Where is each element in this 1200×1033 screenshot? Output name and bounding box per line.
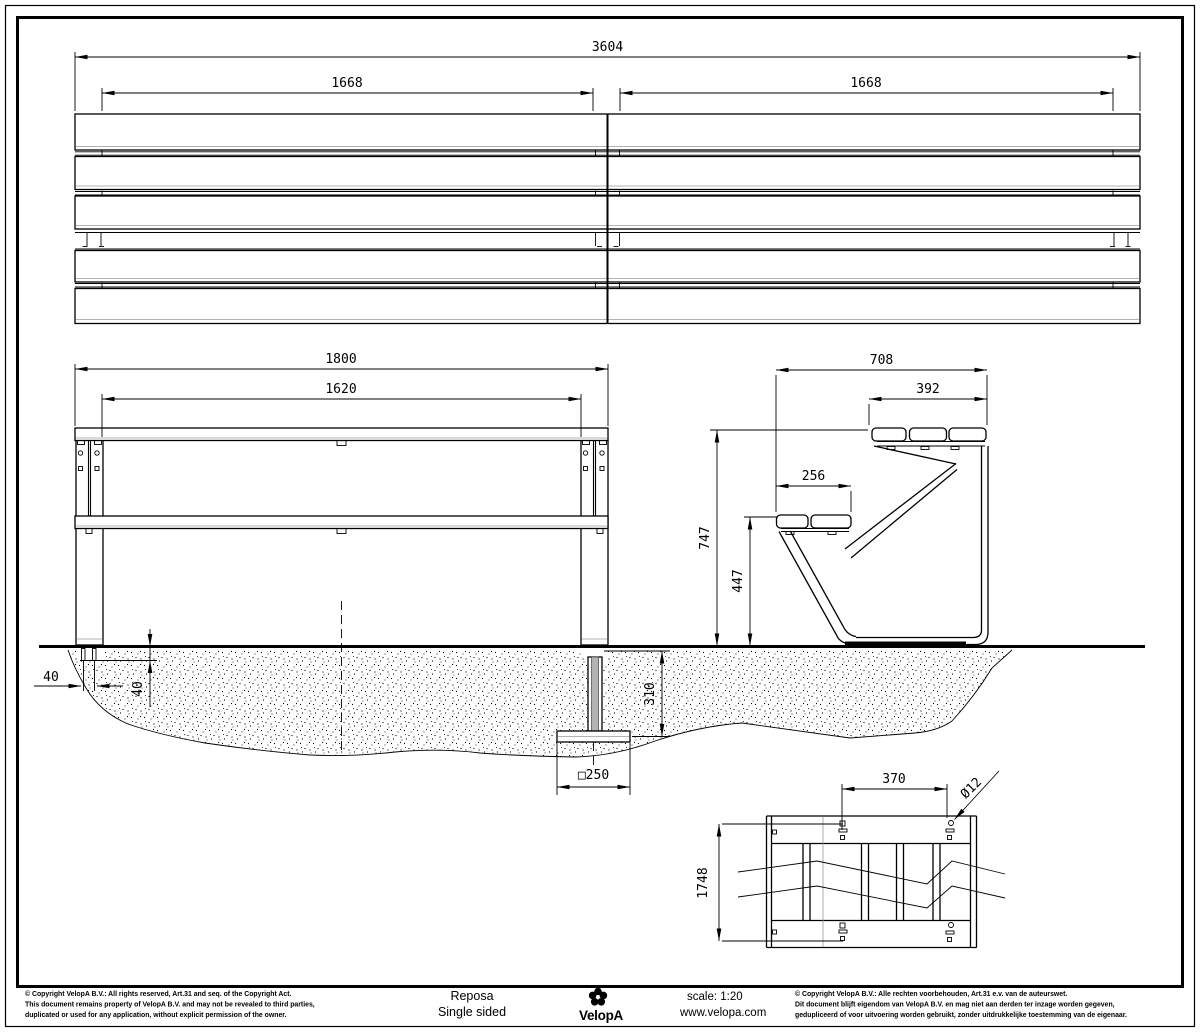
dim-label-1668-right: 1668 bbox=[850, 76, 881, 91]
break-line bbox=[738, 861, 1005, 884]
dim-label-sq250: □250 bbox=[578, 768, 609, 783]
dim-label-447: 447 bbox=[731, 569, 746, 592]
brand-wordmark: VelopA bbox=[579, 1008, 624, 1023]
product-variant: Single sided bbox=[438, 1005, 506, 1019]
dim-label-1620: 1620 bbox=[325, 382, 356, 397]
centre-clip bbox=[337, 441, 346, 446]
dim-label-747: 747 bbox=[698, 526, 713, 549]
copyright-right-line1: © Copyright VelopA B.V.: Alle rechten vo… bbox=[795, 990, 1067, 998]
dim-label-40-depth: 40 bbox=[131, 681, 146, 697]
front-view bbox=[75, 428, 608, 661]
dim-seat-height: 447 bbox=[731, 517, 777, 646]
dim-label-370: 370 bbox=[882, 772, 905, 787]
dim-label-3604: 3604 bbox=[592, 40, 623, 55]
copyright-left-line2: This document remains property of VelopA… bbox=[25, 1002, 315, 1009]
table-board-edge bbox=[75, 428, 608, 441]
front-right-leg bbox=[581, 440, 608, 645]
table-slat bbox=[949, 428, 986, 441]
side-view bbox=[777, 428, 989, 647]
dim-label-1748: 1748 bbox=[696, 867, 711, 898]
technical-drawing: 3604 1668 1668 bbox=[0, 0, 1200, 1033]
dim-seat-depth: 256 bbox=[776, 469, 851, 512]
copyright-right-line3: gedupliceerd of voor uitvoering worden g… bbox=[795, 1012, 1127, 1019]
dim-overall-length: 3604 bbox=[75, 40, 1140, 111]
soil-stipple bbox=[68, 650, 1012, 757]
dim-section-right: 1668 bbox=[620, 76, 1113, 111]
dim-label-708: 708 bbox=[870, 353, 893, 368]
break-line bbox=[738, 886, 1005, 908]
dim-label-dia12: Ø12 bbox=[958, 775, 985, 802]
table-slat bbox=[910, 428, 947, 441]
title-block: © Copyright VelopA B.V.: All rights rese… bbox=[25, 988, 1127, 1023]
dim-label-1668-left: 1668 bbox=[331, 76, 362, 91]
velopa-logo: VelopA bbox=[579, 988, 624, 1023]
dim-bolt-hole: Ø12 bbox=[955, 771, 1000, 820]
dim-label-40-spacing: 40 bbox=[43, 670, 59, 685]
copyright-left-line3: duplicated or used for any application, … bbox=[25, 1012, 287, 1019]
copyright-left-line1: © Copyright VelopA B.V.: All rights rese… bbox=[25, 990, 292, 998]
front-left-leg bbox=[76, 440, 103, 645]
seat-slat bbox=[777, 515, 809, 528]
dim-label-1800: 1800 bbox=[325, 352, 356, 367]
dim-label-256: 256 bbox=[802, 469, 825, 484]
website-label: www.velopa.com bbox=[679, 1007, 766, 1019]
scale-label: scale: 1:20 bbox=[687, 991, 743, 1003]
dim-label-392: 392 bbox=[916, 382, 939, 397]
copyright-right-line2: Dit document blijft eigendom van VelopA … bbox=[795, 1002, 1115, 1009]
dim-frame-length: 1748 bbox=[696, 824, 843, 941]
centre-clip bbox=[337, 529, 346, 534]
seat-slat bbox=[811, 515, 851, 528]
seat-board-edge bbox=[75, 516, 608, 529]
top-view bbox=[75, 114, 1140, 324]
bottom-detail-view: 370 Ø12 1748 bbox=[696, 771, 1005, 948]
drawing-sheet: 3604 1668 1668 bbox=[0, 0, 1200, 1033]
dim-section-left: 1668 bbox=[102, 76, 593, 111]
anchor-rod bbox=[592, 657, 599, 731]
dim-bolt-spacing: 370 bbox=[842, 772, 947, 830]
table-slat bbox=[872, 428, 906, 441]
flower-icon bbox=[589, 988, 607, 1006]
left-anchor bbox=[77, 649, 103, 661]
product-name: Reposa bbox=[450, 989, 493, 1003]
bolt-marks bbox=[773, 821, 955, 942]
dim-table-depth: 392 bbox=[869, 382, 987, 425]
dim-label-310: 310 bbox=[643, 682, 658, 705]
